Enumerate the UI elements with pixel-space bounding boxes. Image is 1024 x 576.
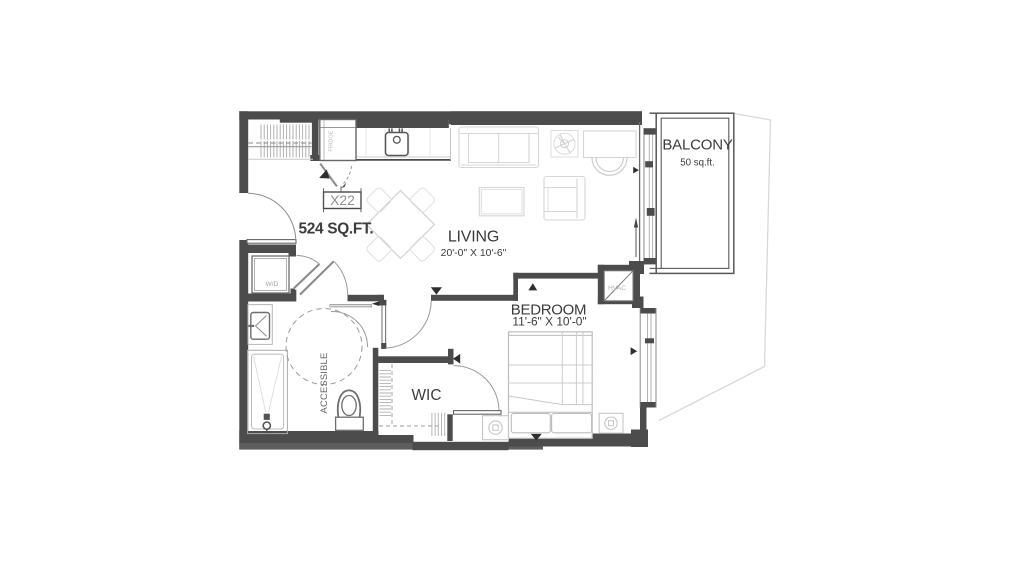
svg-text:W/D: W/D [266,281,279,288]
svg-text:BALCONY: BALCONY [662,137,732,154]
svg-text:50 sq.ft.: 50 sq.ft. [680,158,714,169]
svg-text:LIVING: LIVING [448,229,499,246]
svg-text:524 SQ.FT.: 524 SQ.FT. [299,221,374,238]
svg-text:X22: X22 [330,192,355,208]
svg-text:20'-0" X 10'-6": 20'-0" X 10'-6" [441,248,507,259]
svg-text:HVAC: HVAC [608,285,626,292]
svg-text:ACCESSIBLE: ACCESSIBLE [318,353,329,414]
svg-text:FRIDGE: FRIDGE [329,130,335,151]
svg-text:WIC: WIC [412,387,442,404]
svg-text:11'-6" X 10'-0": 11'-6" X 10'-0" [512,315,586,329]
